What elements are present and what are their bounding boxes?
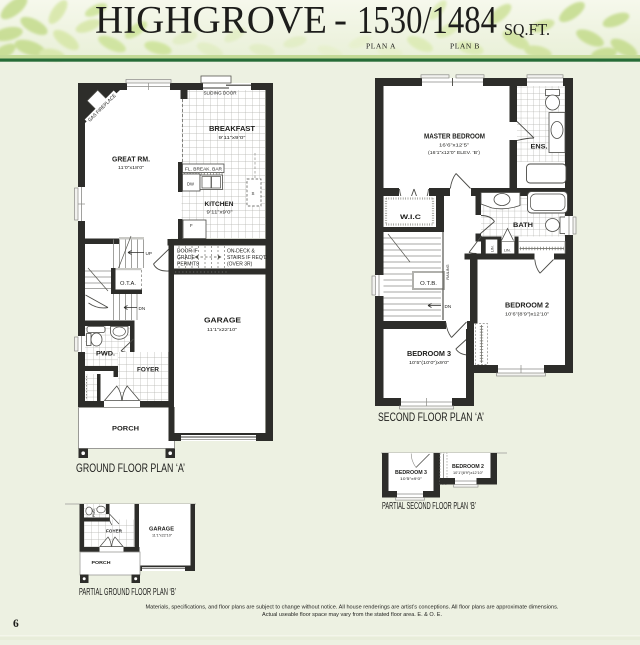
svg-text:SLIDING DOOR: SLIDING DOOR	[204, 91, 238, 97]
svg-text:RAILING: RAILING	[446, 264, 450, 279]
svg-text:LIN.: LIN.	[504, 249, 511, 253]
svg-text:BEDROOM 3: BEDROOM 3	[395, 470, 427, 476]
svg-text:GREAT RM.: GREAT RM.	[112, 157, 150, 164]
svg-text:GARAGE: GARAGE	[149, 527, 175, 533]
svg-text:16’6”x12’5”: 16’6”x12’5”	[439, 143, 470, 149]
svg-text:LIN.: LIN.	[491, 245, 495, 252]
svg-text:Materials, specifications, and: Materials, specifications, and floor pla…	[146, 605, 559, 611]
svg-text:(16’1”x12’0” ELEV. ‘B’): (16’1”x12’0” ELEV. ‘B’)	[428, 150, 480, 156]
svg-text:(OVER 3R): (OVER 3R)	[227, 262, 253, 268]
svg-text:F: F	[190, 223, 193, 228]
svg-text:PWD: PWD	[92, 509, 96, 517]
svg-text:10’1”(8’9”)x12’10”: 10’1”(8’9”)x12’10”	[453, 471, 484, 475]
svg-text:11’1”x22’10”: 11’1”x22’10”	[207, 327, 237, 333]
svg-text:6: 6	[13, 618, 19, 630]
svg-text:10’5”(10’0”)x9’0”: 10’5”(10’0”)x9’0”	[409, 360, 449, 366]
svg-text:O.T.B.: O.T.B.	[420, 281, 437, 287]
svg-text:PORCH: PORCH	[92, 560, 112, 565]
svg-text:10’6”(8’9”)x12’10”: 10’6”(8’9”)x12’10”	[505, 312, 549, 318]
svg-text:DOOR IF: DOOR IF	[177, 249, 198, 255]
svg-text:DN: DN	[139, 306, 146, 311]
svg-text:FOYER: FOYER	[137, 367, 159, 374]
svg-text:GARAGE: GARAGE	[204, 316, 241, 325]
svg-text:BEDROOM 2: BEDROOM 2	[452, 464, 484, 470]
svg-text:SECOND FLOOR PLAN ‘A’: SECOND FLOOR PLAN ‘A’	[378, 410, 484, 424]
svg-text:UP: UP	[146, 251, 152, 256]
svg-text:-: -	[334, 0, 347, 42]
svg-text:MASTER BEDROOM: MASTER BEDROOM	[424, 134, 485, 141]
svg-text:ON-DECK &: ON-DECK &	[227, 249, 255, 255]
svg-text:PLAN A: PLAN A	[366, 42, 396, 51]
svg-text:HIGHGROVE: HIGHGROVE	[95, 0, 327, 42]
svg-text:Actual useable floor space may: Actual useable floor space may vary from…	[262, 612, 442, 618]
svg-text:PORCH: PORCH	[112, 426, 139, 433]
svg-text:S: S	[252, 191, 255, 196]
svg-text:O.T.A.: O.T.A.	[120, 281, 136, 287]
svg-text:10’5”x9’0”: 10’5”x9’0”	[400, 477, 423, 481]
svg-text:PARTIAL GROUND FLOOR PLAN ‘B’: PARTIAL GROUND FLOOR PLAN ‘B’	[79, 587, 176, 598]
svg-text:11’1”x22’10”: 11’1”x22’10”	[152, 534, 173, 538]
svg-text:BEDROOM 3: BEDROOM 3	[407, 351, 451, 358]
svg-text:BREAKFAST: BREAKFAST	[209, 126, 256, 133]
svg-text:KITCHEN: KITCHEN	[205, 201, 234, 208]
svg-text:DW: DW	[187, 182, 194, 187]
svg-text:STAIRS IF REQ’D: STAIRS IF REQ’D	[227, 255, 268, 261]
svg-text:PWD.: PWD.	[96, 351, 115, 358]
svg-text:GROUND FLOOR PLAN ‘A’: GROUND FLOOR PLAN ‘A’	[76, 461, 185, 475]
svg-text:W.I.C: W.I.C	[400, 215, 422, 221]
svg-text:PLAN B: PLAN B	[450, 42, 480, 51]
svg-text:PARTIAL SECOND FLOOR PLAN ‘B’: PARTIAL SECOND FLOOR PLAN ‘B’	[382, 501, 476, 512]
svg-text:SQ.FT.: SQ.FT.	[504, 20, 550, 39]
svg-text:9’11”x9’0”: 9’11”x9’0”	[219, 135, 247, 141]
svg-text:PERMITS: PERMITS	[177, 262, 200, 268]
svg-text:BEDROOM 2: BEDROOM 2	[505, 303, 549, 310]
svg-text:GRADE: GRADE	[177, 255, 195, 261]
svg-text:ENS.: ENS.	[531, 144, 548, 151]
svg-text:FL. BREAK. BAR: FL. BREAK. BAR	[185, 167, 223, 172]
svg-text:BATH: BATH	[513, 222, 533, 229]
svg-text:11’0”x18’0”: 11’0”x18’0”	[118, 165, 144, 171]
svg-text:1530/1484: 1530/1484	[357, 0, 497, 42]
svg-text:DN: DN	[445, 304, 452, 309]
svg-text:FOYER: FOYER	[106, 529, 122, 534]
svg-text:9’11”x9’0”: 9’11”x9’0”	[207, 210, 233, 216]
